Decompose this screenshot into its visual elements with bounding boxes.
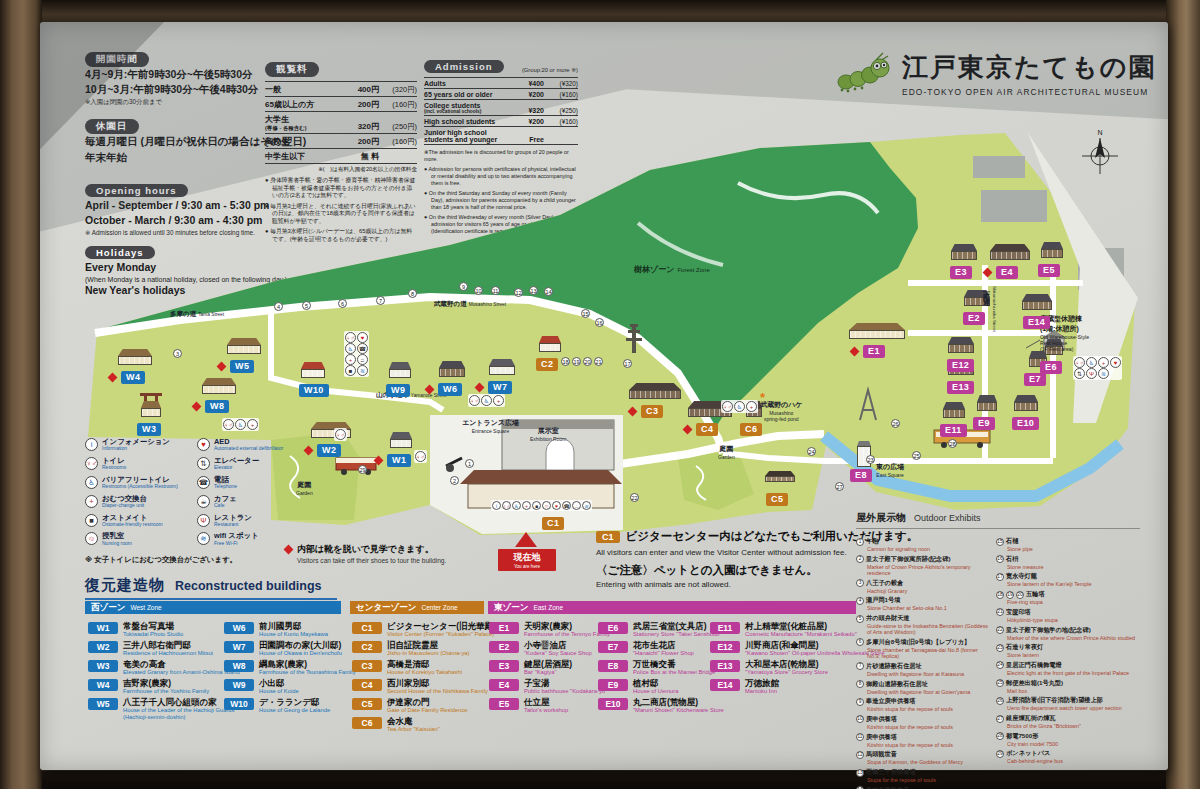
exhibit-name-jp: 御殿山遺跡敷石住居址 (866, 680, 928, 689)
exhibition-room-entrance (546, 438, 574, 470)
exhibit-item-28: 28都電7500形City train model 7500 (996, 732, 1140, 747)
map-marker-E10: E10 (1012, 417, 1039, 430)
building-badge-E5: E5 (489, 698, 519, 710)
zone-bar-west-zone: 西ゾーンWest Zone (85, 601, 341, 614)
building-badge-W8: W8 (224, 660, 254, 672)
wc-icon: ♀♂ (722, 401, 733, 412)
exhibit-number: 4 (856, 597, 864, 605)
map-facility-icons-6: ♀♂ (334, 428, 347, 441)
diaper-change-unit-icon: + (85, 495, 98, 508)
building-list-item-E3: E3鍵屋(居酒屋)Bar "Kagiya" (489, 660, 572, 676)
dp-icon: + (493, 395, 504, 406)
exhibit-head: 16石枡 (996, 555, 1140, 564)
icon-row: ♀♂♿+♥ (1074, 357, 1121, 368)
visitor-center-note-en: All visitors can enter and view the Visi… (596, 548, 847, 557)
map-label-en2: spring-fed pond (760, 416, 803, 422)
building-name-en: Tokiwadai Photo Studio (123, 631, 183, 638)
legend-item-ostomate-friendly-restroom: ■オストメイトOstomate-friendly restroom (85, 514, 197, 528)
map-label-en: Shitamachi-naka Street (992, 286, 997, 332)
map-marker-W9: W9 (386, 384, 410, 397)
exhibit-number: 26 (996, 697, 1004, 705)
exhibit-name-jp: 寛永寺灯籠 (1006, 572, 1037, 581)
map-label-en: Exhibition Room (530, 436, 566, 442)
exhibit-item-16: 16石枡Stone measure (996, 555, 1140, 570)
legend-text: カフェCafe (214, 495, 237, 509)
map-building-W9 (389, 362, 411, 378)
legend-label-en: Free Wi-Fi (214, 541, 259, 547)
exhibit-name-jp: 都電7500形 (1006, 732, 1038, 741)
building-list-item-W10: W10デ・ラランデ邸House of Georg de Lalande (224, 698, 330, 714)
exhibit-item-3: 3八王子の穀倉Hachioji Granary (856, 579, 989, 594)
legend-item-restaurant: ΨレストランRestaurant (197, 514, 309, 528)
exhibit-name-en: Mail box (1007, 688, 1140, 694)
building-badge-C1: C1 (352, 622, 382, 634)
map-building-C2 (539, 336, 561, 352)
building-text: 鍵屋(居酒屋)Bar "Kagiya" (524, 660, 572, 676)
building-text: 丸二商店(荒物屋)"Maruni Shoten" Kitchenware Sto… (633, 698, 724, 714)
exhibit-item-7: 7片砂遺跡敷石住居址Dwelling with flagstone floor … (856, 662, 989, 677)
exhibit-name-jp: 銀座煉瓦街の煉瓦 (1006, 714, 1056, 723)
map-marker-E2: E2 (963, 312, 985, 325)
map-marker-W10: W10 (299, 384, 329, 397)
exhibit-number: 8 (856, 680, 864, 688)
compass-n-label: N (1097, 129, 1102, 136)
exhibit-item-10: 10庚申供養塔Kōshin stupa for the repose of so… (856, 715, 989, 730)
exhibit-name-jp: 石枡 (1006, 555, 1018, 564)
fee-row-subname: (incl. vocational schools) (424, 109, 516, 114)
exhibit-name-jp: 郵便差出箱(1号丸型) (1006, 679, 1063, 688)
legend-label-en: Nursing room (102, 541, 132, 547)
map-exhibit-number-21: 21 (594, 357, 603, 366)
map-building-W8 (202, 378, 236, 394)
fee-row-price: 200円 (349, 99, 379, 110)
fee-row-price: ¥200 (516, 91, 544, 98)
building-name-jp: 三井八郎右衛門邸 (123, 641, 213, 650)
exhibit-number: 5 (856, 615, 864, 623)
exhibit-number: 29 (996, 750, 1004, 758)
in-icon: i (492, 501, 501, 510)
building-name-en: Residence of Hachirouemon Mitsui (123, 650, 213, 657)
icon-row: ■≋ (345, 365, 368, 376)
map-label-jp: エントランス広場 (462, 418, 519, 428)
building-text: 八王子千人同心組頭の家House of the Leader of the Ha… (123, 698, 235, 721)
building-name-jp: 奄美の高倉 (123, 660, 240, 669)
map-building-E9 (977, 395, 997, 411)
exhibit-name-jp: 午砲 (866, 537, 878, 546)
building-name-en: House of the Leader of the Hachioji Guar… (123, 707, 235, 721)
building-name-jp: 村上精華堂(化粧品屋) (745, 622, 857, 631)
map-building-C5 (765, 471, 795, 482)
exhibit-name-en: Stupa for the repose of souls (867, 777, 989, 783)
legend-item-telephone: ☎電話Telephone (197, 476, 309, 490)
map-exhibit-number-9: 9 (459, 282, 468, 291)
building-name-jp: 伊達家の門 (387, 698, 468, 707)
map-marker-E5: E5 (1038, 264, 1060, 277)
exhibit-head: 13石橋三ヶ所供養塔 (856, 768, 989, 777)
exhibit-name-jp: 皇太子殿下御勉学の地(記念碑) (1006, 626, 1091, 635)
building-name-jp: 武居三省堂(文具店) (633, 622, 722, 631)
exhibit-name-en: Stone pipe (1007, 546, 1140, 552)
wc-icon: ♀♂ (335, 429, 346, 440)
map-building-E5 (1041, 242, 1063, 258)
dp-icon: + (345, 354, 356, 365)
map-label-en: Tama Street (198, 312, 224, 317)
el-icon: ⇅ (1074, 368, 1085, 379)
pets-note-jp: 〈ご注意〉ペットとの入園はできません。 (596, 563, 818, 578)
legend-text: インフォメーションInformation (102, 438, 170, 452)
zone-bar-east-zone: 東ゾーンEast Zone (488, 601, 856, 614)
fee-row-group-price: (¥250) (544, 107, 578, 114)
map-facility-icons-0: ♀♂♿+ (222, 418, 259, 431)
wood-frame-left (0, 0, 42, 789)
building-list-item-C5: C5伊達家の門Gate of Date Family Residence (352, 698, 468, 714)
map-exhibit-number-4: 4 (274, 302, 283, 311)
exhibit-head: 25郵便差出箱(1号丸型) (996, 679, 1140, 688)
fee-row-price: ¥400 (516, 80, 544, 87)
fee-row-name: High school students (424, 118, 516, 125)
exhibit-name-jp: 皇居正門石橋飾電燈 (1006, 661, 1062, 670)
building-name-en: Visitor Center (Former "Kokaden" Palace) (387, 631, 496, 638)
legend-label-en: Restrooms (102, 465, 126, 471)
wc-icon: ♀♂ (415, 451, 426, 462)
ac-icon: ♿ (345, 343, 356, 354)
map-exhibit-number-20: 20 (583, 357, 592, 366)
exhibit-item-25: 25郵便差出箱(1号丸型)Mail box (996, 679, 1140, 694)
map-exhibit-number-13: 13 (529, 286, 538, 295)
map-building-E14 (1022, 294, 1052, 310)
exhibit-head: 28都電7500形 (996, 732, 1140, 741)
map-label-jp: 武蔵野の道 (434, 300, 467, 309)
map-exhibit-number-28: 28 (948, 439, 957, 448)
building-text: 会水庵Tea Arbor "Kaisuian" (387, 717, 440, 733)
building-name-en: House of Uemura (633, 688, 678, 695)
exhibit-name-en: City train model 7500 (1007, 741, 1140, 747)
map-label-musashino: 武蔵野のハケMusashinospring-fed pond (760, 400, 803, 422)
legend-column-2: ♥AEDAutomated external defibrillator⇅エレベ… (197, 438, 309, 551)
building-name-en: Tailor's workshop (524, 707, 568, 714)
legend-item-information: iインフォメーションInformation (85, 438, 197, 452)
building-list-item-W3: W3奄美の高倉Elevated Granary from Amami-Oshim… (88, 660, 240, 676)
map-exhibit-number-14: 14 (544, 287, 553, 296)
building-badge-W5: W5 (88, 698, 118, 710)
building-list-item-E9: E9植村邸House of Uemura (598, 679, 678, 695)
building-list-item-E1: E1天明家(農家)Farmhouse of the Tenmyo Family (489, 622, 610, 638)
legend-label-en: Diaper-change unit (102, 503, 147, 509)
exhibit-name-jp: 石樋 (1006, 537, 1018, 546)
fee-row: College students(incl. vocational school… (424, 100, 578, 116)
exhibit-number: 20 (1016, 591, 1024, 599)
exhibit-number: 10 (856, 715, 864, 723)
exhibit-head: 5井の頭弁財天道 (856, 614, 989, 623)
building-text: 常盤台写真場Tokiwadai Photo Studio (123, 622, 183, 638)
fee-row-price: ¥200 (516, 118, 544, 125)
os-icon: ■ (532, 501, 541, 510)
hours-note-jp: ※入園は閉園の30分前まで (85, 98, 275, 107)
building-text: 小出邸House of Koide (259, 679, 299, 695)
legend-note: ※ 女子トイレにおむつ交換台がございます。 (85, 555, 237, 565)
museum-title-en: EDO-TOKYO OPEN AIR ARCHITECTURAL MUSEUM (902, 87, 1156, 97)
building-list-item-W8: W8綱島家(農家)Farmhouse of the Tsunashima Fam… (224, 660, 356, 676)
map-facility-icons-3: i♀♂♿+■☺♥☎☕≋ (491, 500, 592, 511)
exhibits-column-1: 1午砲Cannon for signaling noon2皇太子殿下御仮寓所跡(… (856, 537, 989, 789)
ostomate-friendly-restroom-icon: ■ (85, 514, 98, 527)
building-list-item-C6: C6会水庵Tea Arbor "Kaisuian" (352, 717, 440, 733)
information-icon: i (85, 438, 98, 451)
automated-external-defibrillator-icon: ♥ (197, 438, 210, 451)
building-name-en: House of Korekiyo Takahashi (387, 669, 462, 676)
outdoor-exhibits-title: 屋外展示物 Outdoor Exhibits (856, 511, 1140, 525)
restrooms-accessible-restroom--icon: ♿ (85, 476, 98, 489)
fee-row-price: 400円 (349, 84, 379, 95)
building-name-jp: 小出邸 (259, 679, 299, 688)
building-badge-E12: E12 (710, 641, 740, 653)
building-badge-C2: C2 (352, 641, 382, 653)
fees-title-en: Admission (424, 60, 504, 73)
map-exhibit-number-26: 26 (891, 419, 900, 428)
te-icon: ☎ (562, 501, 571, 510)
building-name-jp: 万徳旅館 (745, 679, 779, 688)
map-label-garden: 庭園Garden (718, 444, 735, 460)
fee-row-group-price: (160円) (379, 100, 417, 110)
fee-row-name: 一般 (265, 84, 349, 95)
map-marker-W8: W8 (205, 400, 229, 413)
map-facility-icons-1: ♀♂♥♿☎+☕■≋ (344, 331, 369, 377)
building-list-item-C4: C4西川家別邸Second House of the Nishikawa Fam… (352, 679, 488, 695)
wood-frame-bottom (0, 771, 1200, 789)
map-marker-E12: E12 (947, 359, 974, 372)
building-badge-E7: E7 (598, 641, 628, 653)
map-marker-W6: W6 (438, 383, 462, 396)
exhibit-name-jp: 片砂遺跡敷石住居址 (866, 662, 922, 671)
building-name-en: Tea Arbor "Kaisuian" (387, 726, 440, 733)
building-name-en: Stationery Store "Takei Sanshodo" (633, 631, 722, 638)
building-list-item-E2: E2小寺醤油店"Kodera" Soy Sauce Shop (489, 641, 592, 657)
exhibit-item-1: 1午砲Cannon for signaling noon (856, 537, 989, 552)
map-building-W7 (489, 359, 515, 375)
exhibit-name-en: Stone measure (1007, 564, 1140, 570)
map-building-E3 (951, 244, 977, 260)
ac-icon: ♿ (734, 401, 745, 412)
building-text: 奄美の高倉Elevated Granary from Amami-Oshima … (123, 660, 240, 676)
te-icon: ☎ (357, 343, 368, 354)
map-building-E1 (849, 323, 905, 339)
building-badge-E11: E11 (710, 622, 740, 634)
exhibit-head: 27銀座煉瓦街の煉瓦 (996, 714, 1140, 723)
exhibit-head: 1午砲 (856, 537, 989, 546)
building-badge-W6: W6 (224, 622, 254, 634)
legend-item-nursing-room: ☺授乳室Nursing room (85, 532, 197, 546)
building-list-item-W1: W1常盤台写真場Tokiwadai Photo Studio (88, 622, 183, 638)
hours-line: 4月~9月:午前9時30分~午後5時30分 (85, 67, 275, 82)
building-name-en: Farmhouse of the Yoshino Family (123, 688, 209, 695)
fee-row-group-price: (¥160) (544, 118, 578, 125)
map-exhibit-number-17: 17 (623, 359, 632, 368)
exhibit-name-en: Kōshin stupa for the repose of souls (867, 742, 989, 748)
building-name-en: House of Koide (259, 688, 299, 695)
os-icon: ■ (345, 365, 356, 376)
exhibit-head: 17寛永寺灯籠 (996, 572, 1140, 581)
building-name-jp: ビジターセンター(旧光華殿) (387, 622, 496, 631)
you-are-here-en: You are here (498, 564, 556, 569)
legend-label-en: Automated external defibrillator (214, 446, 283, 452)
building-badge-W4: W4 (88, 679, 118, 691)
legend-label-en: Telephone (214, 484, 237, 490)
building-name-en: "Maruni Shoten" Kitchenware Store (633, 707, 724, 714)
map-exhibit-number-11: 11 (491, 286, 500, 295)
exhibit-name-jp: 庚申供養塔 (866, 733, 897, 742)
building-text: 伊達家の門Gate of Date Family Residence (387, 698, 468, 714)
building-text: 綱島家(農家)Farmhouse of the Tsunashima Famil… (259, 660, 356, 676)
building-name-en: Public bathhouse "Kodakara-yu" (524, 688, 607, 695)
map-exhibit-number-10: 10 (474, 286, 483, 295)
building-name-en: "Yamatoya Store" Grocery Store (745, 669, 828, 676)
building-name-en: Farmhouse of the Tsunashima Family (259, 669, 356, 676)
building-name-jp: 小寺醤油店 (524, 641, 592, 650)
exhibit-name-jp: 石造り常夜灯 (1006, 643, 1043, 652)
exhibit-head: 7片砂遺跡敷石住居址 (856, 662, 989, 671)
building-badge-E10: E10 (598, 698, 628, 710)
ae-icon: ♥ (552, 501, 561, 510)
building-name-en: House of Okawa in Den'enchofu (259, 650, 342, 657)
zone-bar-center-zone: センターゾーンCenter Zone (350, 601, 484, 614)
building-name-en: House of Kunio Mayekawa (259, 631, 328, 638)
fee-row: 65歳以上の方200円(160円) (265, 97, 417, 112)
map-building-C3 (629, 383, 681, 399)
building-list-item-W6: W6前川國男邸House of Kunio Mayekawa (224, 622, 328, 638)
map-marker-C2: C2 (536, 358, 558, 371)
map-marker-E14: E14 (1023, 316, 1050, 329)
nursing-room-icon: ☺ (85, 532, 98, 545)
exhibit-head: 3八王子の穀倉 (856, 579, 989, 588)
paved-area (973, 156, 1025, 178)
you-are-here-arrow (515, 532, 537, 547)
building-name-en: "Hanaichi" Flower Shop (633, 650, 694, 657)
nu-icon: ☺ (542, 501, 551, 510)
exhibits-column-2: 15石樋Stone pipe16石枡Stone measure17寛永寺灯籠St… (996, 537, 1140, 767)
building-text: 花市生花店"Hanaichi" Flower Shop (633, 641, 694, 657)
compass-icon: N (1082, 129, 1118, 174)
map-facility-icons-4: ♀♂♿+♥⇅Ψ≋ (1073, 356, 1122, 380)
building-name-en: Gate of Date Family Residence (387, 707, 468, 714)
building-badge-W1: W1 (88, 622, 118, 634)
map-label-jp: 東の広場 (876, 462, 904, 472)
map-building-W10 (301, 362, 325, 378)
exhibit-name-jp: 石橋三ヶ所供養塔 (866, 768, 916, 777)
map-marker-E11: E11 (940, 424, 967, 437)
building-name-jp: 花市生花店 (633, 641, 694, 650)
map-marker-E8: E8 (850, 469, 872, 482)
exhibit-item-17: 17寛永寺灯籠Stone lantern of the Kan'eiji Tem… (996, 572, 1140, 587)
building-text: 植村邸House of Uemura (633, 679, 678, 695)
building-name-jp: 吉野家(農家) (123, 679, 209, 688)
exhibit-number: 25 (996, 679, 1004, 687)
building-badge-W2: W2 (88, 641, 118, 653)
visitor-center-roof (460, 470, 622, 484)
building-name-en: Jisho-in Mausoleum (Otama-ya) (387, 650, 469, 657)
caterpillar-mascot-icon (836, 52, 894, 96)
exhibit-head: 181920五輪塔 (996, 590, 1140, 599)
exhibit-head: 10庚申供養塔 (856, 715, 989, 724)
wc-icon: ♀♂ (345, 332, 356, 343)
building-name-jp: 子宝湯 (524, 679, 607, 688)
exhibit-head: 23石造り常夜灯 (996, 643, 1140, 652)
exhibit-name-jp: 皇太子殿下御仮寓所跡(記念碑) (866, 555, 951, 564)
elevator-icon: ⇅ (197, 457, 210, 470)
map-marker-C6: C6 (740, 423, 762, 436)
map-exhibit-number-19: 19 (572, 357, 581, 366)
map-label-exhibition-room: 展示室Exhibition Room (530, 426, 566, 442)
exhibit-name-en: Dwelling with flagstone floor at Katasun… (867, 671, 989, 677)
exhibit-name-en: Stone chamber at Tamagawa-dai No.8 (form… (867, 647, 989, 659)
exhibit-item-23: 23石造り常夜灯Stone lantern (996, 643, 1140, 658)
building-text: 武居三省堂(文具店)Stationery Store "Takei Sansho… (633, 622, 722, 638)
exhibit-item-5: 5井の頭弁財天道Guide-stone to the Inokashira Be… (856, 614, 989, 635)
zone-bar-en: Center Zone (422, 604, 458, 611)
hours-lines-jp: 4月~9月:午前9時30分~午後5時30分10月~3月:午前9時30分~午後4時… (85, 67, 275, 97)
exhibit-number: 1 (856, 538, 864, 546)
museum-title-jp: 江戸東京たてもの園 (902, 50, 1156, 85)
exhibit-head: 21宝篋印塔 (996, 608, 1140, 617)
exhibit-name-jp: 井の頭弁財天道 (866, 614, 909, 623)
legend-text: トイレRestrooms (102, 457, 126, 471)
ac-icon: ♿ (1086, 357, 1097, 368)
dp-icon: + (1098, 357, 1109, 368)
group-note: (Group:20 or more ※) (522, 67, 578, 73)
exhibit-item-6: 6多摩川台8号墳(旧9号墳)【レプリカ】Stone chamber at Tam… (856, 638, 989, 659)
building-list-item-W4: W4吉野家(農家)Farmhouse of the Yoshino Family (88, 679, 209, 695)
building-name-en: House of Georg de Lalande (259, 707, 330, 714)
map-label-forest-zone: 樹林ゾーンForest Zone (634, 258, 710, 276)
exhibit-number: 13 (856, 769, 864, 777)
exhibit-name-en: Marker of the site where Crown Prince Ak… (1007, 635, 1140, 641)
map-marker-C4: C4 (696, 423, 718, 436)
building-name-en: Second House of the Nishikawa Family (387, 688, 488, 695)
fee-row-name: 65 years old or older (424, 91, 516, 98)
building-badge-E8: E8 (598, 660, 628, 672)
map-building-E4 (990, 244, 1030, 260)
map-label-musashino-street: 武蔵野の道Musashino Street (434, 300, 506, 309)
hours-title-jp: 開園時間 (85, 52, 149, 67)
you-are-here-badge: 現在地 You are here (498, 549, 556, 571)
recon-title-underline (85, 598, 337, 600)
building-name-en: Elevated Granary from Amami-Oshima Islan… (123, 669, 240, 676)
ca-icon: ☕ (357, 354, 368, 365)
legend-text: オストメイトOstomate-friendly restroom (102, 514, 163, 528)
exhibit-number: 23 (996, 644, 1004, 652)
building-text: 子宝湯Public bathhouse "Kodakara-yu" (524, 679, 607, 695)
map-marker-E9: E9 (973, 417, 995, 430)
exhibit-name-en: Stone lantern (1007, 652, 1140, 658)
restrooms-icon: ♀♂ (85, 457, 98, 470)
building-badge-E9: E9 (598, 679, 628, 691)
map-marker-E7: E7 (1024, 373, 1046, 386)
exhibit-item-26: 26上野消防署(旧下谷消防署)望楼上部Ueno fire department … (996, 696, 1140, 711)
wc-icon: ♀♂ (469, 395, 480, 406)
building-badge-W7: W7 (224, 641, 254, 653)
zone-bar-jp: 東ゾーン (494, 602, 528, 614)
map-label-en: Forest Zone (677, 267, 709, 273)
icon-row: i♀♂♿+■☺♥☎☕≋ (492, 501, 591, 510)
exhibit-item-13: 13石橋三ヶ所供養塔Stupa for the repose of souls (856, 768, 989, 783)
fees-title-jp: 観覧料 (265, 62, 319, 77)
exhibit-name-en: Electric light at the front gate of the … (1007, 670, 1140, 676)
fee-row-group-price: (¥160) (544, 91, 578, 98)
exhibit-head: 15石樋 (996, 537, 1140, 546)
map-facility-icons-5: ♀♂♿+* (721, 400, 758, 413)
building-badge-E6: E6 (598, 622, 628, 634)
map-label-jp: 多摩の道 (170, 310, 196, 319)
pets-note-en: Entering with animals are not allowed. (596, 580, 731, 589)
